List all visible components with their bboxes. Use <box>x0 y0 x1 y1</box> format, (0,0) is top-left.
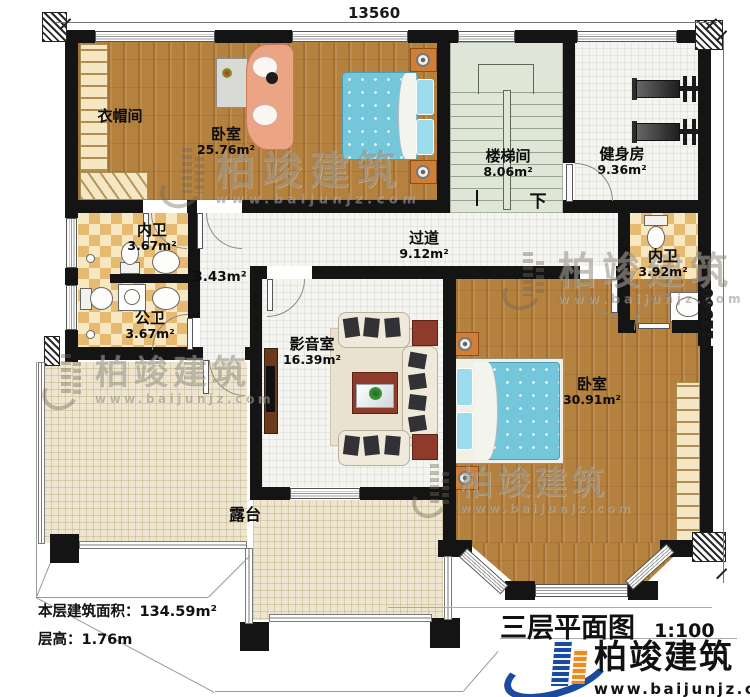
floor-area-label: 本层建筑面积： <box>38 604 140 620</box>
bed1-pillow <box>416 79 434 115</box>
floor-area-info: 本层建筑面积：134.59m² <box>38 600 217 621</box>
window <box>290 488 360 499</box>
dimension-line-top <box>55 22 717 23</box>
shower-head <box>86 330 95 339</box>
window <box>577 31 677 42</box>
corner-hatch <box>692 532 726 562</box>
window <box>66 285 77 330</box>
room-name: 楼梯间 <box>453 148 563 165</box>
floor-height-label: 层高： <box>38 632 82 648</box>
wall <box>437 42 450 213</box>
barbell-plate <box>692 119 696 145</box>
watermark-logo <box>412 462 456 518</box>
room-name: 露台 <box>205 506 285 524</box>
room-label-cloakroom: 衣帽间 <box>80 108 160 125</box>
eave-line <box>36 597 208 598</box>
toilet-bowl <box>647 226 665 249</box>
room-label-bath-public: 公卫 3.67m² <box>95 310 205 342</box>
room-name: 衣帽间 <box>80 108 160 125</box>
room-area: 30.91m² <box>537 393 647 407</box>
wall <box>312 266 443 279</box>
room-area: 3.67m² <box>95 327 205 341</box>
eave-line <box>36 563 51 598</box>
terrace-railing <box>269 614 432 622</box>
dimension-tick <box>716 568 727 579</box>
terrace-pillar <box>50 534 79 563</box>
lamp <box>458 337 472 351</box>
wall <box>215 30 292 43</box>
wall <box>563 42 575 163</box>
watermark-brand: 柏竣建筑 <box>95 356 274 392</box>
wall <box>563 200 711 213</box>
wall <box>65 200 143 213</box>
dimension-top: 13560 <box>348 4 400 22</box>
shower-head <box>86 254 95 263</box>
terrace-pillar <box>430 618 460 648</box>
desk <box>216 58 248 108</box>
window <box>66 218 77 268</box>
room-area: 3.43m² <box>175 270 265 286</box>
bed2-pillow <box>456 368 473 406</box>
watermark-logo <box>502 250 552 310</box>
room-name: 健身房 <box>567 146 677 163</box>
person-figure <box>266 72 278 84</box>
room-name: 内卫 <box>608 248 718 265</box>
room-area: 9.12m² <box>369 247 479 261</box>
brand-name: 柏竣建筑 <box>594 630 750 678</box>
wall <box>65 268 78 285</box>
room-area: 3.92m² <box>608 265 718 279</box>
terrace-railing <box>444 556 452 620</box>
floor-area-value: 134.59m² <box>140 604 217 620</box>
sofa-cushion <box>252 104 278 126</box>
sofa-pillow <box>408 394 427 411</box>
floor-height-info: 层高：1.76m <box>38 628 132 649</box>
window <box>95 31 215 42</box>
eave-line <box>215 691 463 692</box>
watermark-brand: 柏竣建筑 <box>460 466 633 501</box>
eave-line <box>36 362 37 598</box>
desk-flowers <box>222 68 232 78</box>
dimension-right: 12560 <box>699 284 717 344</box>
room-area: 16.39m² <box>257 353 367 367</box>
bay-wall <box>505 581 535 600</box>
room-name: 内卫 <box>97 222 207 239</box>
stairs-down-label: 下 <box>524 193 552 213</box>
room-label-bath-master2: 内卫 3.92m² <box>608 248 718 280</box>
watermark: 柏竣建筑 www.baijunjz.com <box>95 356 274 406</box>
sofa-pillow <box>384 317 401 337</box>
sofa-pillow <box>384 435 401 455</box>
wall <box>65 30 78 218</box>
sofa-pillow <box>363 435 380 455</box>
sofa-pillow <box>343 317 360 338</box>
toilet-tank <box>644 215 668 226</box>
room-name: 公卫 <box>95 310 205 327</box>
sink <box>152 287 180 310</box>
room-area: 9.36m² <box>567 163 677 177</box>
watermark-logo <box>42 352 88 410</box>
barbell-plate <box>683 76 687 102</box>
lamp <box>416 53 430 67</box>
floor-plan: 柏竣建筑 www.baijunjz.com 柏竣建筑 www.baijunjz.… <box>0 0 750 697</box>
wall <box>250 487 290 500</box>
room-label-vestibule: 3.43m² <box>175 270 265 286</box>
window <box>458 31 515 42</box>
room-area: 3.67m² <box>97 239 207 253</box>
dimension-line-right <box>723 35 724 583</box>
brand-text: 柏竣建筑 www.baijunjz.com <box>594 630 750 697</box>
room-name: 影音室 <box>257 336 367 353</box>
sofa-pillow <box>363 317 380 337</box>
room-label-hallway: 过道 9.12m² <box>369 230 479 262</box>
watermark-url: www.baijunjz.com <box>95 392 274 406</box>
room-area: 25.76m² <box>171 143 281 157</box>
wardrobe-cloakroom-lower <box>80 172 148 200</box>
watermark: 柏竣建筑 www.baijunjz.com <box>215 150 420 207</box>
room-label-bath-master1: 内卫 3.67m² <box>97 222 207 254</box>
plant <box>369 387 382 400</box>
room-label-bedroom2: 卧室 30.91m² <box>537 376 647 408</box>
window <box>292 31 408 42</box>
brand-url: www.baijunjz.com <box>594 680 750 697</box>
room-label-terrace: 露台 <box>205 506 285 524</box>
end-table <box>412 434 438 460</box>
sofa-pillow <box>408 373 427 390</box>
sofa-pillow <box>408 352 427 370</box>
watermark-url: www.baijunjz.com <box>460 501 633 515</box>
eave-line <box>463 651 499 692</box>
room-label-stairwell: 楼梯间 8.06m² <box>453 148 563 180</box>
gym-bench <box>636 80 680 98</box>
room-label-media: 影音室 16.39m² <box>257 336 367 368</box>
barbell-plate <box>692 76 696 102</box>
watermark: 柏竣建筑 www.baijunjz.com <box>460 466 633 515</box>
sofa-pillow <box>343 435 360 456</box>
stair-direction-arrow <box>476 190 478 206</box>
bed2-sheet <box>474 362 498 460</box>
floor-height-value: 1.76m <box>82 632 133 648</box>
room-label-gym: 健身房 9.36m² <box>567 146 677 178</box>
wall <box>408 30 458 43</box>
wardrobe-bedroom2 <box>676 382 700 544</box>
bay-window <box>535 584 628 597</box>
watermark-url: www.baijunjz.com <box>215 192 420 207</box>
room-name: 过道 <box>369 230 479 247</box>
stairs-down-text: 下 <box>524 193 552 213</box>
toilet-bowl <box>90 287 113 310</box>
washing-machine-door <box>124 289 140 305</box>
room-label-bedroom1: 卧室 25.76m² <box>171 126 281 158</box>
terrace-railing <box>79 541 247 549</box>
room-name: 卧室 <box>171 126 281 143</box>
barbell-plate <box>683 119 687 145</box>
wall <box>700 346 713 558</box>
gym-bench <box>636 123 680 141</box>
bed1-sheet <box>398 73 416 159</box>
end-table <box>412 320 438 346</box>
sofa-pillow <box>408 415 427 432</box>
room-area: 8.06m² <box>453 165 563 179</box>
room-name: 卧室 <box>537 376 647 393</box>
bed2-pillow <box>456 412 473 450</box>
terrace-pillar <box>240 622 269 651</box>
